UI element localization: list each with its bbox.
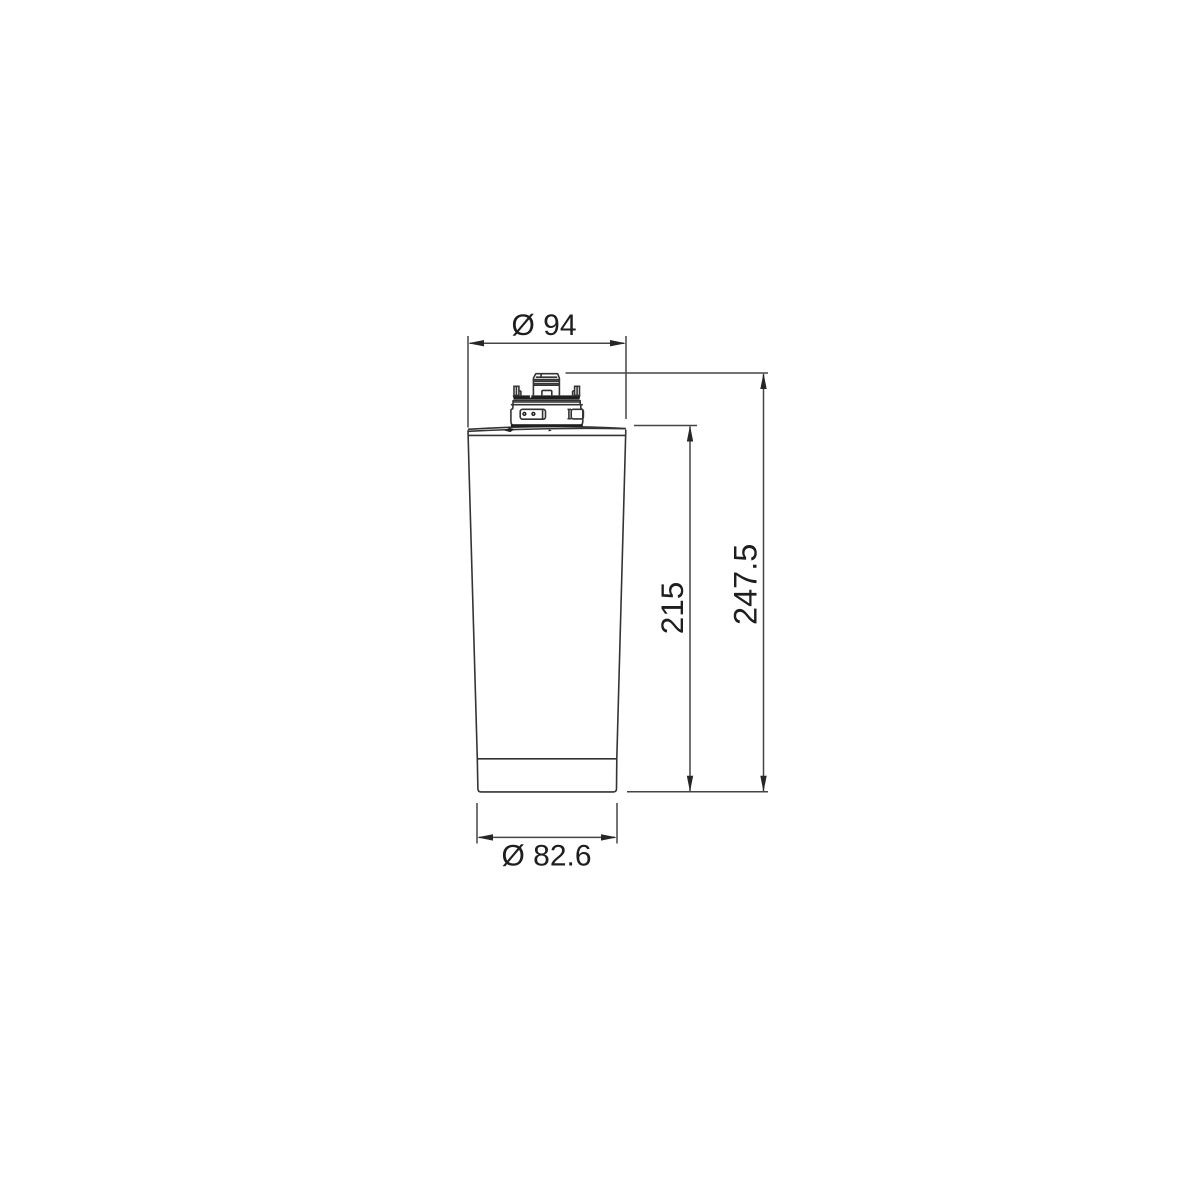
svg-text:247.5: 247.5 <box>727 544 763 625</box>
svg-text:Ø 94: Ø 94 <box>511 309 576 342</box>
svg-text:215: 215 <box>654 582 690 635</box>
svg-text:Ø 82.6: Ø 82.6 <box>501 839 591 872</box>
